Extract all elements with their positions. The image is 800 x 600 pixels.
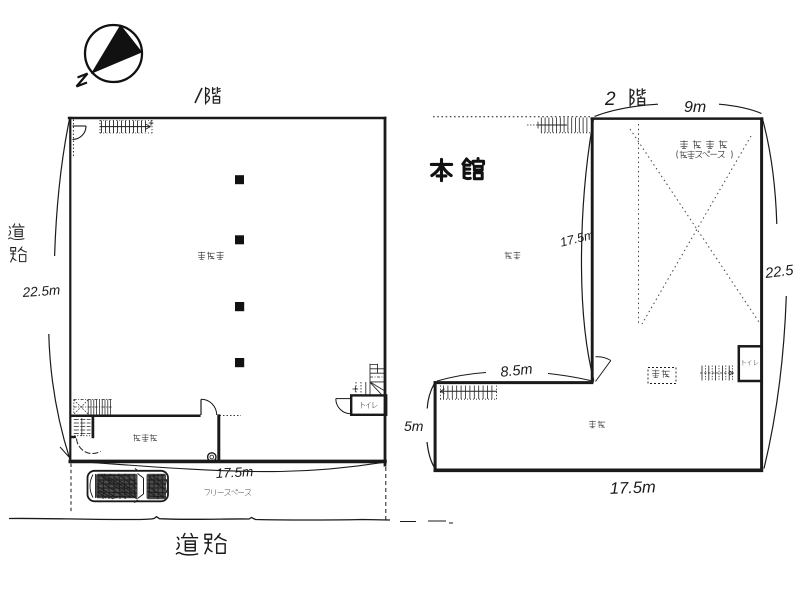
svg-text:22.5m: 22.5m (21, 282, 60, 300)
svg-text:8.5m: 8.5m (500, 362, 534, 381)
svg-text:5m: 5m (404, 418, 424, 434)
svg-text:2: 2 (604, 89, 616, 110)
svg-text:17.5m: 17.5m (215, 464, 253, 481)
svg-text:9m: 9m (684, 99, 706, 116)
svg-text:17.5m: 17.5m (610, 478, 656, 498)
svg-text:17.5m: 17.5m (559, 228, 596, 250)
svg-text:22.5: 22.5 (763, 263, 795, 283)
